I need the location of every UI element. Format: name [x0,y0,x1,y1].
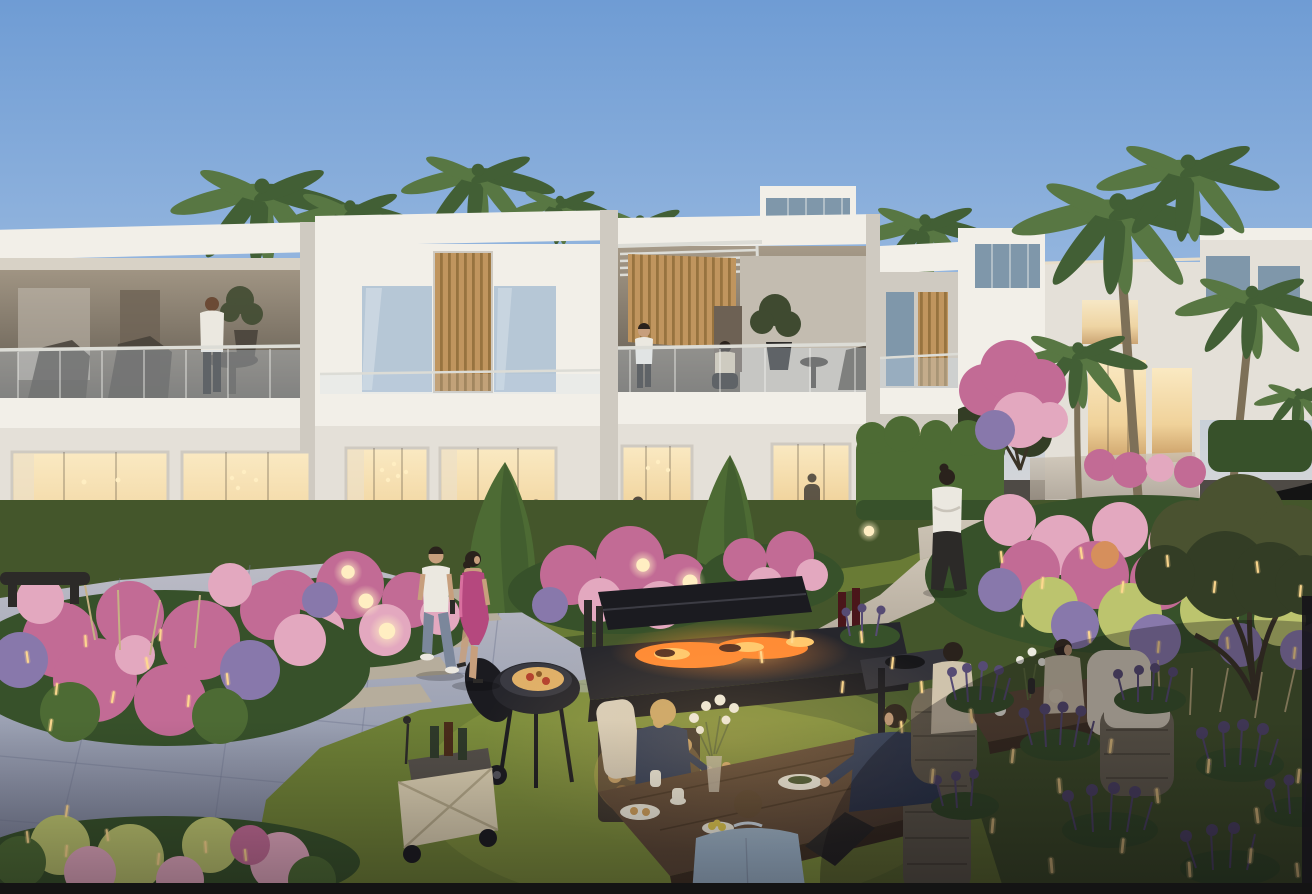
far-hedge [1208,420,1312,472]
render-canvas: Dusk rendering of a modern white two-sto… [0,0,1312,894]
letterbox-right-sliver [1302,596,1312,894]
community-render-image: Dusk rendering of a modern white two-sto… [0,0,1312,894]
screenshot-root: Dusk rendering of a modern white two-sto… [0,0,1312,894]
letterbox-bottom-bar [0,883,1312,894]
flower-bed-left [0,563,370,746]
